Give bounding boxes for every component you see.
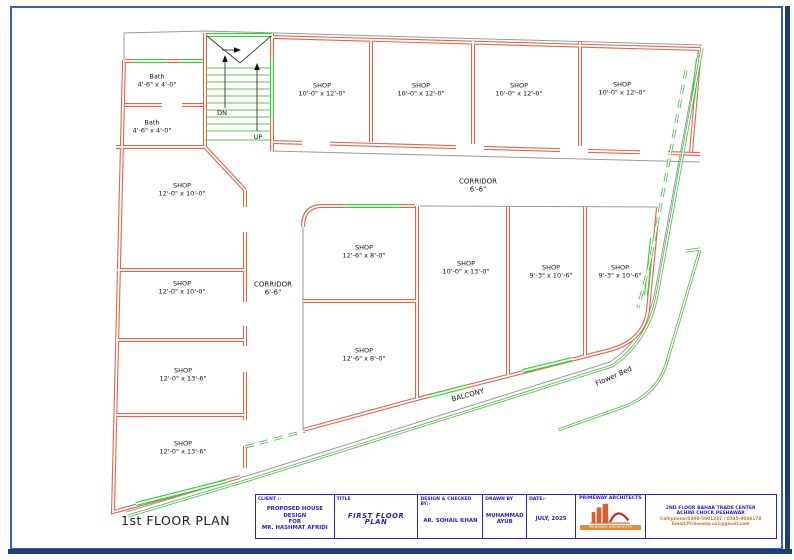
drawing-title: FIRST FLOOR PLAN xyxy=(337,513,416,526)
room-label-shop-mid-2: SHOP12'-6" x 8'-0" xyxy=(343,348,386,363)
room-dims: 4'-6" x 4'-0" xyxy=(138,81,177,89)
room-dims: 12'-0" x 10'-0" xyxy=(158,190,205,198)
plan-title: 1st FLOOR PLAN xyxy=(121,513,230,528)
room-label-shop-left-2: SHOP12'-0" x 10'-0" xyxy=(158,281,205,296)
title-block-design-cell: DESIGN & CHECKED BY:- AR. SOHAIL KHAN xyxy=(417,494,483,539)
room-dims: 12'-6" x 8'-0" xyxy=(343,252,386,260)
room-dims: 10'-0" x 12'-0" xyxy=(397,90,444,98)
room-label-shop-top-2: SHOP10'-0" x 12'-0" xyxy=(397,83,444,98)
room-dims: 10'-0" x 12'-0" xyxy=(298,90,345,98)
room-dims: 12'-6" x 8'-0" xyxy=(343,355,386,363)
room-label-shop-mid-1: SHOP12'-6" x 8'-0" xyxy=(343,245,386,260)
room-label-bath-2: Bath4'-6" x 4'-0" xyxy=(133,120,172,135)
stairs-landing-arrow-icon xyxy=(222,47,241,53)
room-dims: 10'-0" x 12'-0" xyxy=(495,90,542,98)
title-block-date-cell: DATE:- JULY, 2025 xyxy=(526,494,576,539)
stairs-up-label: UP xyxy=(254,133,263,141)
title-block: CLIENT :- PROPOSED HOUSE DESIGN FOR MR. … xyxy=(256,494,777,539)
room-label-shop-right-1: SHOP10'-0" x 13'-0" xyxy=(442,261,489,276)
room-label-shop-left-3: SHOP12'-0" x 13'-6" xyxy=(159,368,206,383)
room-label-shop-left-4: SHOP12'-0" x 13'-6" xyxy=(159,441,206,456)
stairs-treads xyxy=(205,68,272,140)
area-label-corridor-side: CORRIDOR6'-6" xyxy=(254,282,292,297)
client-line: PROPOSED HOUSE DESIGN xyxy=(258,506,332,519)
firm-email: Email:Primeway.co1@gmail.com xyxy=(648,522,774,527)
room-label-shop-top-3: SHOP10'-0" x 12'-0" xyxy=(495,83,542,98)
room-dims: 10'-0" x 13'-0" xyxy=(442,268,489,276)
room-dims: 12'-0" x 13'-6" xyxy=(159,375,206,383)
stairs-up-arrow-icon xyxy=(254,63,260,131)
client-line: MR. HASHMAT AFRIDI xyxy=(262,525,328,531)
room-label-bath-1: Bath4'-6" x 4'-0" xyxy=(138,74,177,89)
area-label-corridor-main: CORRIDOR6'-6" xyxy=(459,179,497,194)
room-label-shop-left-1: SHOP12'-0" x 10'-0" xyxy=(158,183,205,198)
room-label-shop-right-3: SHOP9'-3" x 10'-6" xyxy=(599,265,642,280)
title-block-title-cell: TITLE FIRST FLOOR PLAN xyxy=(334,494,419,539)
title-block-drawn-cell: DRAWN BY MUHAMMAD AYUB xyxy=(482,494,527,539)
area-dims: 6'-6" xyxy=(265,289,282,297)
sheet-right-bar xyxy=(785,6,790,554)
area-dims: 6'-6" xyxy=(470,186,487,194)
room-dims: 12'-0" x 10'-0" xyxy=(158,288,205,296)
stairs-down-label: DN xyxy=(217,109,227,117)
firm-banner: PRIMEWAY ARCHITECTS xyxy=(580,525,642,530)
date-value: JULY, 2025 xyxy=(536,516,567,522)
room-label-shop-top-4: SHOP10'-0" x 12'-0" xyxy=(598,82,645,97)
room-dims: 9'-3" x 10'-6" xyxy=(599,272,642,280)
drawing-sheet: DN UP Bath4'-6" x 4'-0"Bath4'-6" x 4'-0"… xyxy=(0,0,794,560)
room-dims: 4'-6" x 4'-0" xyxy=(133,127,172,135)
primeway-logo-icon xyxy=(588,501,632,525)
title-block-client-cell: CLIENT :- PROPOSED HOUSE DESIGN FOR MR. … xyxy=(255,494,335,539)
room-dims: 9'-3" x 10'-6" xyxy=(530,272,573,280)
title-block-address-cell: 2ND FLOOR BAHAR TRADE CENTER ACHINI CHOC… xyxy=(645,494,777,539)
room-label-shop-right-2: SHOP9'-3" x 10'-6" xyxy=(530,265,573,280)
room-label-shop-top-1: SHOP10'-0" x 12'-0" xyxy=(298,83,345,98)
designed-by-label: DESIGN & CHECKED BY:- xyxy=(420,497,480,507)
drawn-by-value: AYUB xyxy=(497,519,513,525)
room-dims: 10'-0" x 12'-0" xyxy=(598,89,645,97)
title-block-logo-cell: PRIMEWAY ARCHITECTS PRIMEWAY ARCHITECTS xyxy=(575,494,646,539)
room-dims: 12'-0" x 13'-6" xyxy=(159,448,206,456)
sheet-bottom-bar xyxy=(8,549,792,554)
designed-by-value: AR. SOHAIL KHAN xyxy=(423,518,477,524)
